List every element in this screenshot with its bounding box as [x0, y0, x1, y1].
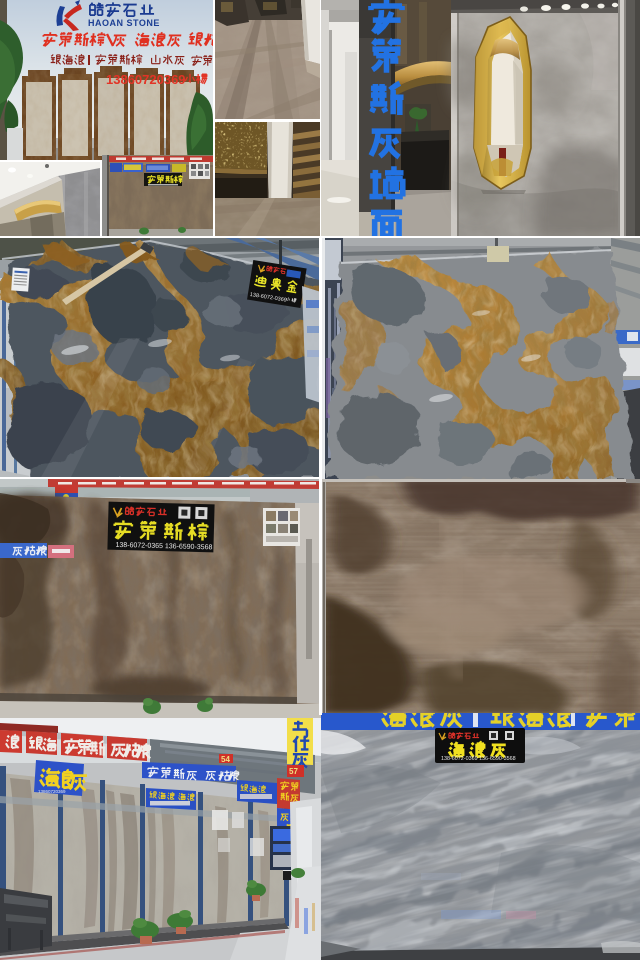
svg-text:13860720369: 13860720369: [106, 72, 186, 87]
svg-text:138-6072-0369 136-6590-3568: 138-6072-0369 136-6590-3568: [441, 756, 516, 762]
svg-text:13860720369: 13860720369: [38, 789, 66, 794]
svg-text:54: 54: [221, 755, 230, 764]
svg-text:57: 57: [289, 767, 298, 776]
svg-text:HAOAN STONE: HAOAN STONE: [88, 18, 160, 28]
